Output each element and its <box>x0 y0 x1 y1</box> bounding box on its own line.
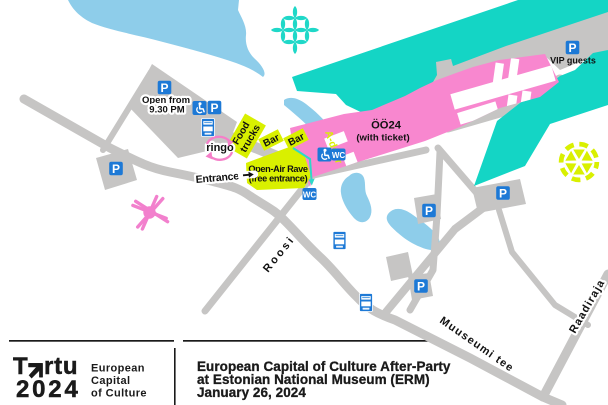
svg-text:January 26, 2024: January 26, 2024 <box>197 385 306 400</box>
svg-text:of Culture: of Culture <box>91 388 147 400</box>
svg-text:ÖÖ24: ÖÖ24 <box>371 119 402 132</box>
svg-text:9.30 PM: 9.30 PM <box>149 105 184 116</box>
svg-text:(with ticket): (with ticket) <box>356 133 409 144</box>
svg-text:European: European <box>91 363 145 375</box>
svg-text:Capital: Capital <box>91 375 130 387</box>
svg-text:2024: 2024 <box>16 376 81 403</box>
svg-text:VIP guests: VIP guests <box>550 56 596 66</box>
